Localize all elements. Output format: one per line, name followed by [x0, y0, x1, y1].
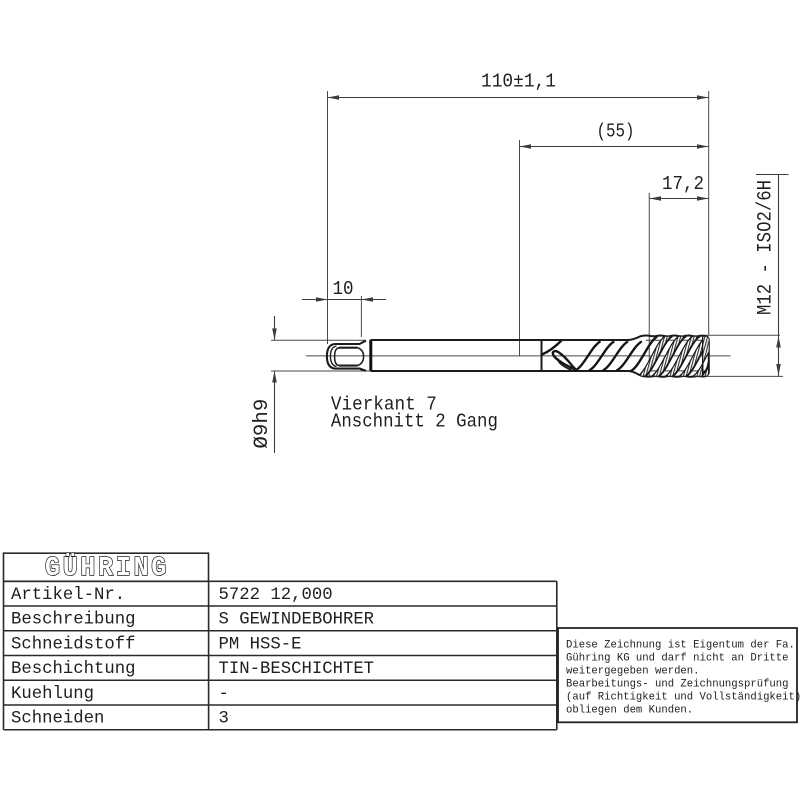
svg-text:Gühring KG und darf nicht an D: Gühring KG und darf nicht an Dritte [566, 653, 789, 665]
svg-text:110±1,1: 110±1,1 [481, 71, 556, 93]
svg-text:Schneidstoff: Schneidstoff [11, 636, 135, 655]
svg-text:Ø9h9: Ø9h9 [251, 399, 274, 449]
svg-text:(55): (55) [597, 121, 635, 143]
svg-text:weitergegeben werden.: weitergegeben werden. [566, 666, 700, 678]
svg-text:Beschichtung: Beschichtung [11, 660, 135, 679]
svg-text:Artikel-Nr.: Artikel-Nr. [11, 586, 125, 605]
svg-text:obliegen dem Kunden.: obliegen dem Kunden. [566, 705, 693, 717]
svg-text:10: 10 [333, 278, 354, 300]
svg-text:3: 3 [219, 710, 229, 729]
svg-text:Kuehlung: Kuehlung [11, 685, 94, 704]
svg-text:GÜHRING: GÜHRING [45, 552, 169, 584]
svg-text:Bearbeitungs- und Zeichnungspr: Bearbeitungs- und Zeichnungsprüfung [566, 679, 789, 691]
svg-text:TIN-BESCHICHTET: TIN-BESCHICHTET [219, 660, 375, 679]
svg-text:Beschreibung: Beschreibung [11, 611, 135, 630]
svg-text:Anschnitt 2 Gang: Anschnitt 2 Gang [331, 411, 498, 433]
svg-text:Diese Zeichnung ist Eigentum d: Diese Zeichnung ist Eigentum der Fa. [566, 640, 795, 652]
svg-text:M12 - ISO2/6H: M12 - ISO2/6H [755, 180, 778, 315]
svg-text:-: - [219, 685, 229, 704]
svg-text:17,2: 17,2 [662, 173, 704, 195]
svg-text:PM HSS-E: PM HSS-E [219, 636, 302, 655]
svg-text:S GEWINDEBOHRER: S GEWINDEBOHRER [219, 611, 375, 630]
svg-text:(auf Richtigkeit und Vollständ: (auf Richtigkeit und Vollständigkeit) [566, 692, 800, 704]
svg-text:Schneiden: Schneiden [11, 710, 104, 729]
svg-text:5722 12,000: 5722 12,000 [219, 586, 333, 605]
